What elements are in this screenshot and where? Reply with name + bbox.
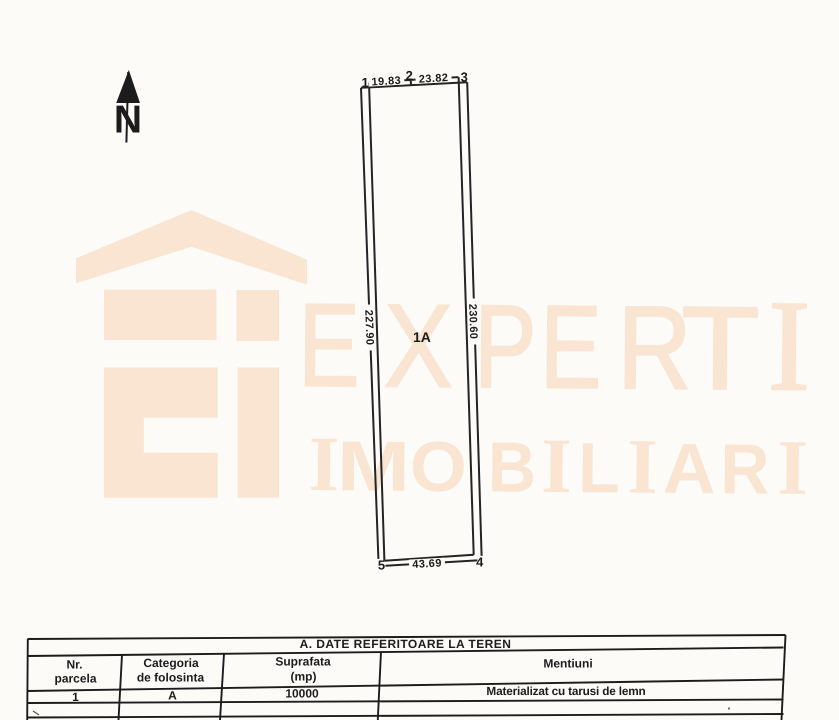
svg-text:de folosinta: de folosinta (137, 670, 205, 684)
svg-text:5: 5 (378, 558, 385, 573)
svg-text:I: I (767, 274, 810, 418)
svg-text:Categoria: Categoria (143, 656, 199, 670)
svg-text:1: 1 (72, 690, 79, 704)
svg-text:43.69: 43.69 (412, 557, 442, 571)
svg-text:Mentiuni: Mentiuni (543, 656, 592, 670)
svg-text:23.82: 23.82 (418, 72, 448, 86)
svg-text:X: X (384, 280, 454, 413)
svg-text:2: 2 (406, 68, 413, 83)
svg-text:A: A (662, 430, 715, 509)
svg-text:O: O (410, 428, 468, 507)
svg-text:N: N (114, 98, 142, 141)
svg-text:I: I (627, 422, 658, 509)
svg-text:I: I (308, 420, 339, 507)
svg-text:19.83: 19.83 (371, 75, 401, 89)
svg-text:Suprafata: Suprafata (275, 654, 331, 668)
svg-text:A: A (168, 689, 177, 703)
svg-text:230.60: 230.60 (466, 304, 479, 340)
svg-text:parcela: parcela (54, 671, 96, 685)
svg-text:E: E (298, 279, 360, 411)
svg-text:10000: 10000 (285, 686, 319, 700)
svg-text:R: R (720, 430, 770, 509)
svg-text:P: P (474, 281, 537, 413)
svg-text:(mp): (mp) (291, 669, 317, 683)
svg-text:1: 1 (361, 75, 368, 90)
svg-text:Nr.: Nr. (66, 657, 82, 671)
svg-text:E: E (539, 281, 601, 413)
svg-text:4: 4 (476, 555, 484, 570)
svg-text:3: 3 (461, 69, 468, 84)
svg-text:Materializat cu tarusi de lemn: Materializat cu tarusi de lemn (486, 684, 645, 698)
svg-text:1A: 1A (413, 329, 431, 345)
svg-text:L: L (578, 429, 620, 508)
svg-text:I: I (777, 424, 808, 511)
svg-text:I: I (541, 422, 572, 509)
svg-text:T: T (680, 282, 760, 415)
svg-text:A. DATE REFERITOARE LA TEREN: A. DATE REFERITOARE LA TEREN (300, 637, 512, 651)
svg-text:B: B (488, 428, 537, 507)
svg-text:227.90: 227.90 (362, 310, 375, 346)
